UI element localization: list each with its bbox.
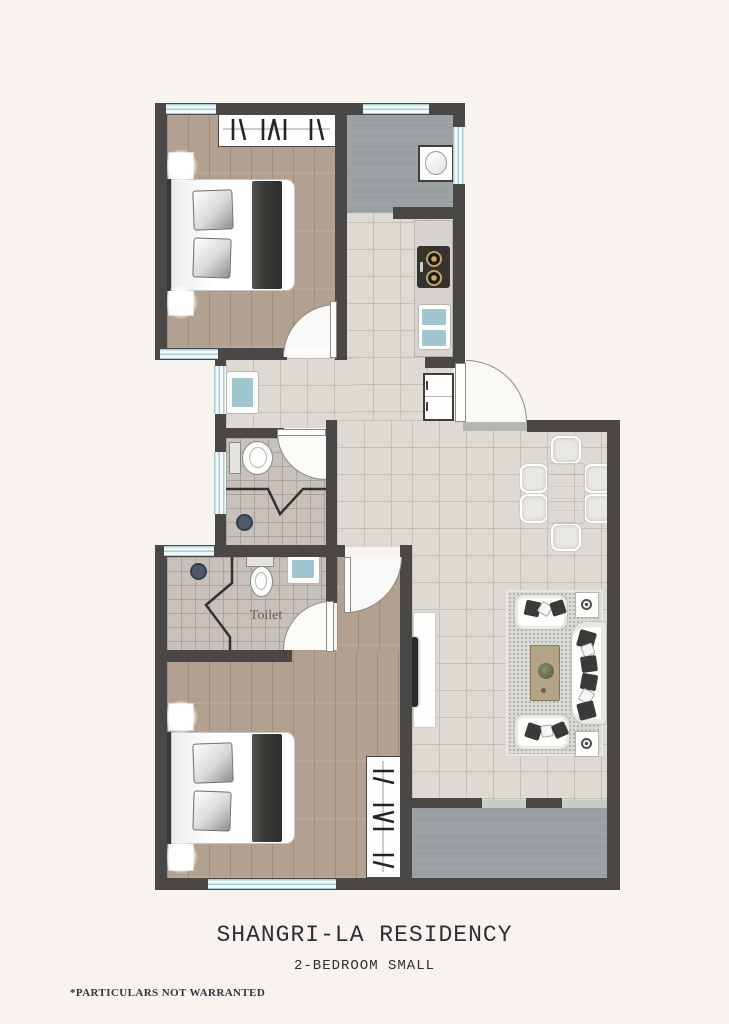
plan-subtitle: 2-BEDROOM SMALL — [0, 958, 729, 974]
plan-title: SHANGRI-LA RESIDENCY — [0, 922, 729, 948]
plant-icon — [538, 663, 554, 679]
balcony-floor — [412, 808, 607, 878]
entrance-door-swing — [466, 360, 527, 422]
sofa — [571, 621, 607, 725]
burner-icon — [426, 251, 442, 267]
wall — [326, 557, 337, 603]
toilet — [250, 566, 273, 597]
lamp-glow — [164, 700, 198, 734]
fridge-handle-icon — [426, 402, 428, 411]
wash-basin — [287, 555, 320, 584]
floor-plan: Toilet — [0, 0, 729, 1024]
decor-icon — [541, 688, 546, 693]
window — [160, 349, 218, 359]
pillow — [192, 237, 231, 278]
toilet-tank — [229, 442, 241, 474]
pillow — [192, 790, 231, 831]
dining-chair — [520, 494, 548, 523]
kitchen-sink — [418, 304, 451, 350]
window — [363, 104, 429, 114]
cushion — [580, 655, 598, 673]
wall — [607, 420, 620, 890]
fridge — [423, 373, 454, 421]
wall — [527, 420, 618, 432]
room-label-toilet: Toilet — [236, 608, 296, 624]
wall — [412, 798, 482, 808]
sink-basin — [421, 308, 447, 326]
window — [166, 104, 216, 114]
bed-runner — [252, 181, 282, 289]
window — [208, 879, 336, 889]
disclaimer-note: *PARTICULARS NOT WARRANTED — [70, 987, 265, 999]
door-leaf — [277, 429, 326, 436]
page: { "page": { "background": "#f7f4ef", "ti… — [0, 0, 729, 1024]
wall — [393, 207, 453, 219]
toilet-seat — [249, 447, 267, 468]
hall-floor — [337, 420, 413, 547]
window — [453, 127, 465, 184]
washer-door-icon — [425, 151, 447, 175]
door-leaf — [344, 557, 351, 613]
pillow — [192, 742, 233, 783]
table-lamp-icon — [581, 738, 592, 749]
wall — [155, 650, 292, 662]
cushion — [576, 700, 597, 721]
lamp-glow — [164, 840, 198, 874]
door-leaf — [326, 601, 334, 652]
dining-chair — [520, 464, 548, 493]
armchair — [514, 714, 570, 750]
wall — [155, 103, 167, 360]
washing-machine — [418, 145, 454, 182]
wall — [326, 420, 337, 557]
wall — [400, 545, 412, 890]
toilet — [242, 441, 273, 475]
stove-knob-icon — [420, 262, 423, 272]
lamp-glow — [164, 285, 198, 319]
balcony-slider-threshold — [562, 800, 607, 808]
basin-bowl — [231, 377, 254, 408]
wall — [526, 798, 562, 808]
bed-runner — [252, 734, 282, 842]
dining-chair — [551, 436, 581, 464]
wall — [226, 428, 284, 438]
pillow — [192, 189, 233, 230]
wardrobe — [366, 756, 402, 878]
burner-icon — [426, 270, 442, 286]
entrance-door-leaf — [455, 363, 466, 422]
hanging-clothes-icon — [219, 114, 334, 145]
fridge-handle-icon — [426, 381, 428, 390]
wardrobe — [218, 113, 336, 147]
table-lamp-icon — [581, 599, 592, 610]
dining-chair — [551, 523, 581, 551]
balcony-slider-threshold — [482, 800, 526, 808]
wall — [155, 545, 167, 890]
fridge-divider — [425, 396, 452, 397]
tv-icon — [411, 637, 418, 707]
armchair — [514, 594, 568, 630]
cushion — [549, 599, 567, 617]
sink-basin — [421, 329, 447, 347]
basin-bowl — [291, 559, 315, 579]
window — [214, 452, 226, 514]
cushion — [551, 721, 569, 739]
side-table — [575, 592, 599, 618]
window — [164, 546, 214, 556]
shower-screen — [202, 555, 236, 657]
toilet-seat — [255, 572, 267, 590]
shower-screen — [226, 485, 326, 519]
stove — [417, 246, 450, 288]
side-table — [575, 731, 599, 757]
lamp-glow — [164, 149, 198, 183]
window — [214, 366, 226, 414]
hanging-clothes-icon — [367, 757, 400, 876]
coffee-table — [530, 645, 560, 701]
dining-table — [547, 463, 585, 524]
wash-basin — [226, 371, 259, 414]
door-leaf — [330, 301, 337, 358]
